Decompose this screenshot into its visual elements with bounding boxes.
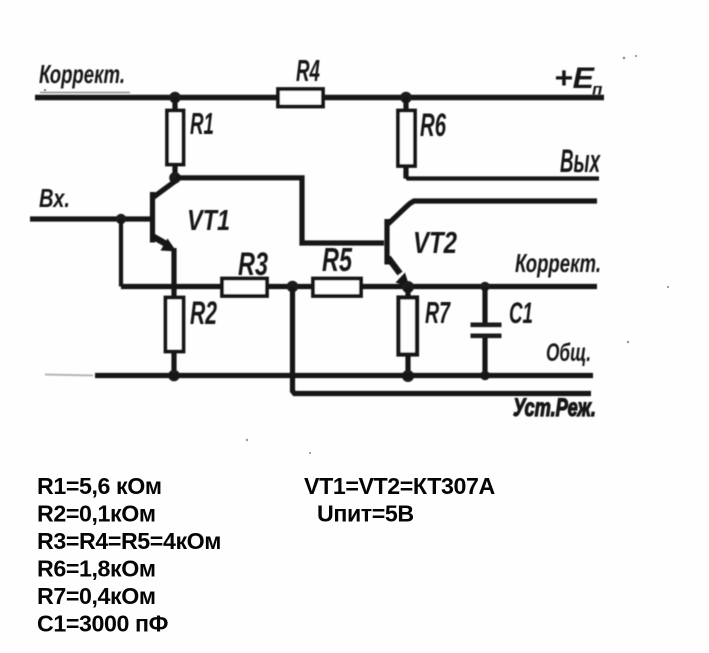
svg-text:Вх.: Вх. [39,183,70,213]
svg-text:R6: R6 [420,107,446,143]
svg-text:R6=1,8кОм: R6=1,8кОм [37,556,156,582]
svg-text:R3: R3 [238,246,268,282]
svg-text:R1=5,6 кОм: R1=5,6 кОм [37,473,162,499]
svg-text:R4: R4 [296,53,320,88]
svg-text:R7=0,4кОм: R7=0,4кОм [37,583,156,609]
svg-text:R5: R5 [322,241,352,278]
svg-text:Общ.: Общ. [546,339,591,367]
svg-text:+E: +E [554,62,595,95]
svg-text:Коррект.: Коррект. [515,248,601,278]
svg-text:R2: R2 [190,295,217,331]
svg-text:VT1=VT2=КТ307А: VT1=VT2=КТ307А [304,473,496,499]
svg-text:R7: R7 [425,295,451,330]
svg-text:п: п [592,80,603,99]
svg-text:R1: R1 [190,106,214,141]
svg-text:Uпит=5В: Uпит=5В [317,501,414,527]
svg-text:VT1: VT1 [187,205,230,237]
svg-text:С1: С1 [509,297,533,330]
svg-text:R2=0,1кОм: R2=0,1кОм [37,501,156,527]
svg-text:Коррект.: Коррект. [39,59,125,89]
svg-text:Уст.Реж.: Уст.Реж. [513,394,596,422]
svg-text:VT2: VT2 [413,225,457,260]
svg-text:R3=R4=R5=4кОм: R3=R4=R5=4кОм [37,528,221,554]
svg-text:Вых: Вых [560,143,601,179]
svg-text:C1=3000 пФ: C1=3000 пФ [37,611,168,637]
